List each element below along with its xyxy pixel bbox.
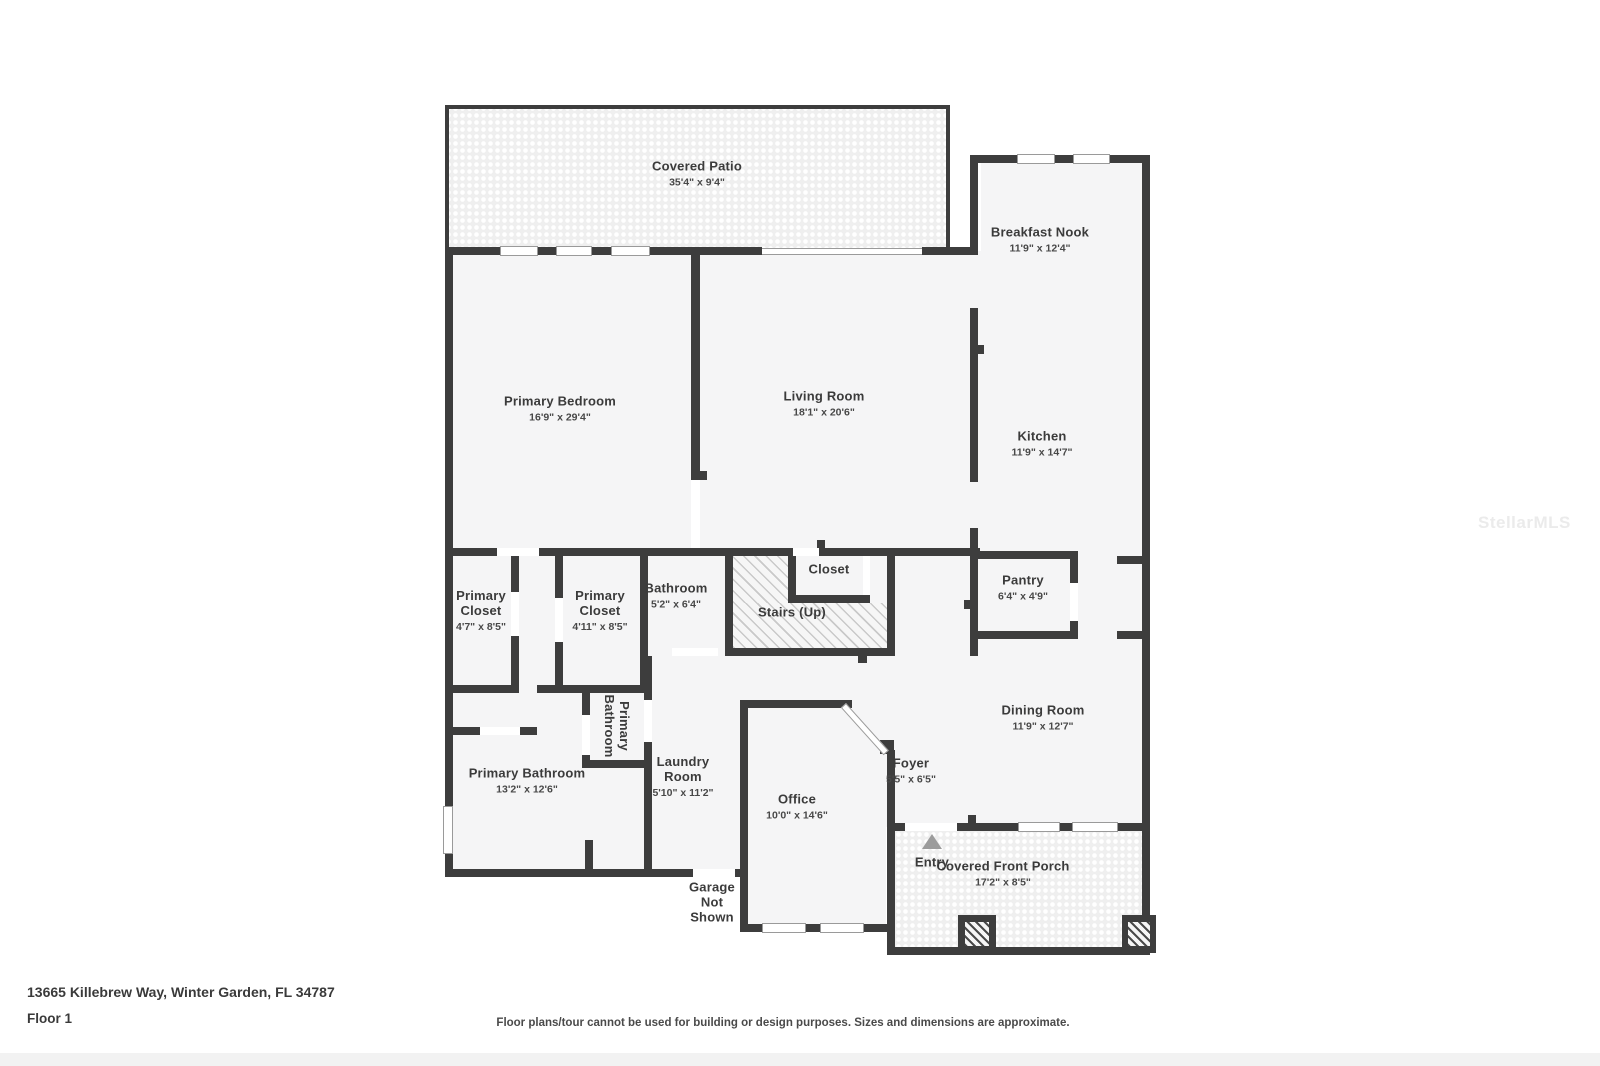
door-opening [691, 480, 700, 548]
wall-segment [970, 551, 978, 639]
room-dims: 11'9" x 14'7" [1011, 446, 1072, 458]
window [611, 246, 650, 256]
room-dims: 13'2" x 12'6" [469, 783, 586, 795]
room-dims: 5'5" x 6'5" [886, 773, 936, 785]
note-text: Garage Not Shown [684, 881, 740, 926]
wall-segment [970, 155, 978, 255]
window [1073, 154, 1110, 164]
stellar-mls-watermark: StellarMLS [1478, 513, 1571, 533]
room-name: Dining Room [1001, 704, 1084, 719]
room-dims: 5'10" x 11'2" [651, 787, 715, 799]
wall-segment [970, 631, 1078, 639]
door-opening [672, 648, 718, 656]
wall-segment [970, 551, 1078, 559]
room-label-covered-front-porch: Covered Front Porch 17'2" x 8'5" [936, 860, 1069, 889]
room-dims: 6'4" x 4'9" [998, 590, 1048, 602]
door-opening [905, 823, 957, 831]
door-opening [644, 700, 652, 742]
window [500, 246, 538, 256]
wall-segment [1142, 155, 1150, 831]
room-dims: 17'2" x 8'5" [936, 876, 1069, 888]
room-label-primary-closet-2: Primary Closet 4'11" x 8'5" [569, 589, 631, 633]
porch-column-hatch [965, 922, 989, 946]
floor-number-label: Floor 1 [27, 1011, 72, 1026]
door-opening [497, 548, 539, 556]
wall-segment [725, 556, 733, 656]
window [820, 923, 864, 933]
room-dims: 5'2" x 6'4" [645, 598, 708, 610]
door-opening [693, 869, 735, 877]
floor-plan-canvas: Covered Patio 35'4" x 9'4" Breakfast Noo… [0, 0, 1600, 1066]
wall-segment [740, 700, 748, 932]
room-dims: 4'11" x 8'5" [569, 621, 631, 633]
window [762, 923, 806, 933]
disclaimer-text: Floor plans/tour cannot be used for buil… [496, 1017, 1069, 1029]
wall-segment [887, 556, 895, 656]
door-opening [480, 727, 520, 735]
room-name: Closet [809, 563, 850, 578]
room-name: Primary Closet [569, 589, 631, 619]
room-name: Entry [915, 856, 949, 871]
room-label-laundry-room: Laundry Room 5'10" x 11'2" [651, 755, 715, 799]
room-name: Covered Front Porch [936, 860, 1069, 875]
room-label-primary-bedroom: Primary Bedroom 16'9" x 29'4" [504, 395, 616, 424]
room-name: Pantry [998, 574, 1048, 589]
wall-segment [691, 251, 700, 480]
room-name: Breakfast Nook [991, 226, 1089, 241]
wall-segment [1117, 631, 1142, 639]
room-dims: 11'9" x 12'7" [1001, 720, 1084, 732]
room-label-covered-patio: Covered Patio 35'4" x 9'4" [652, 160, 742, 189]
room-label-pantry: Pantry 6'4" x 4'9" [998, 574, 1048, 603]
wall-segment [445, 685, 519, 693]
room-name: Bathroom [645, 582, 708, 597]
door-opening [1070, 583, 1078, 621]
window [556, 246, 592, 256]
door-opening [793, 548, 819, 556]
room-label-primary-closet-1: Primary Closet 4'7" x 8'5" [450, 589, 512, 633]
room-dims: 16'9" x 29'4" [504, 411, 616, 423]
wall-segment [537, 685, 648, 693]
window [1018, 822, 1060, 832]
door-opening [555, 598, 563, 642]
wall-segment [725, 648, 895, 656]
room-label-office: Office 10'0" x 14'6" [766, 793, 828, 822]
wall-segment [887, 947, 1150, 955]
room-name: Primary Bedroom [504, 395, 616, 410]
room-label-living-room: Living Room 18'1" x 20'6" [784, 390, 865, 419]
porch-column-hatch [1128, 922, 1150, 946]
room-label-primary-bathroom: Primary Bathroom 13'2" x 12'6" [469, 767, 586, 796]
entry-arrow-icon [922, 834, 942, 849]
property-address: 13665 Killebrew Way, Winter Garden, FL 3… [27, 984, 335, 1000]
room-dims: 11'9" x 12'4" [991, 242, 1089, 254]
wall-segment [700, 471, 707, 480]
wall-segment [970, 308, 978, 482]
room-label-closet: Closet [809, 563, 850, 578]
wall-segment [445, 105, 449, 251]
room-dims: 35'4" x 9'4" [652, 176, 742, 188]
door-opening [863, 556, 870, 595]
wall-segment [740, 700, 843, 708]
wall-segment [946, 105, 950, 251]
wall-segment [1117, 556, 1142, 564]
room-label-stairs: Stairs (Up) [758, 606, 826, 621]
wall-segment [817, 540, 825, 548]
room-name: Primary Bathroom [601, 684, 631, 768]
room-label-foyer: Foyer 5'5" x 6'5" [886, 757, 936, 786]
room-dims: 18'1" x 20'6" [784, 406, 865, 418]
window [1017, 154, 1055, 164]
room-label-dining-room: Dining Room 11'9" x 12'7" [1001, 704, 1084, 733]
room-name: Office [766, 793, 828, 808]
wall-segment [970, 155, 1150, 163]
room-name: Kitchen [1011, 430, 1072, 445]
room-name: Foyer [886, 757, 936, 772]
room-name: Living Room [784, 390, 865, 405]
garage-note: Garage Not Shown [684, 881, 740, 926]
door-opening [582, 715, 590, 755]
sliding-door [762, 248, 922, 255]
room-dims: 10'0" x 14'6" [766, 809, 828, 821]
room-label-bathroom: Bathroom 5'2" x 6'4" [645, 582, 708, 611]
wall-segment [978, 345, 984, 354]
entry-label: Entry [915, 856, 949, 871]
bottom-strip [0, 1053, 1600, 1066]
stairs-hatch [733, 556, 788, 603]
wall-segment [445, 105, 950, 109]
wall-segment [887, 823, 895, 955]
room-name: Stairs (Up) [758, 606, 826, 621]
room-dims: 4'7" x 8'5" [450, 621, 512, 633]
window [443, 806, 453, 854]
room-name: Primary Closet [450, 589, 512, 619]
wall-segment [788, 595, 870, 603]
room-label-breakfast-nook: Breakfast Nook 11'9" x 12'4" [991, 226, 1089, 255]
door-opening [511, 592, 519, 636]
room-label-kitchen: Kitchen 11'9" x 14'7" [1011, 430, 1072, 459]
window [1072, 822, 1118, 832]
wall-segment [445, 247, 762, 255]
room-name: Primary Bathroom [469, 767, 586, 782]
wall-segment [858, 656, 867, 663]
room-name: Covered Patio [652, 160, 742, 175]
room-label-primary-bathroom-small: Primary Bathroom [601, 684, 631, 768]
room-floor [449, 251, 981, 693]
room-name: Laundry Room [651, 755, 715, 785]
wall-segment [968, 815, 976, 823]
wall-segment [445, 247, 453, 877]
